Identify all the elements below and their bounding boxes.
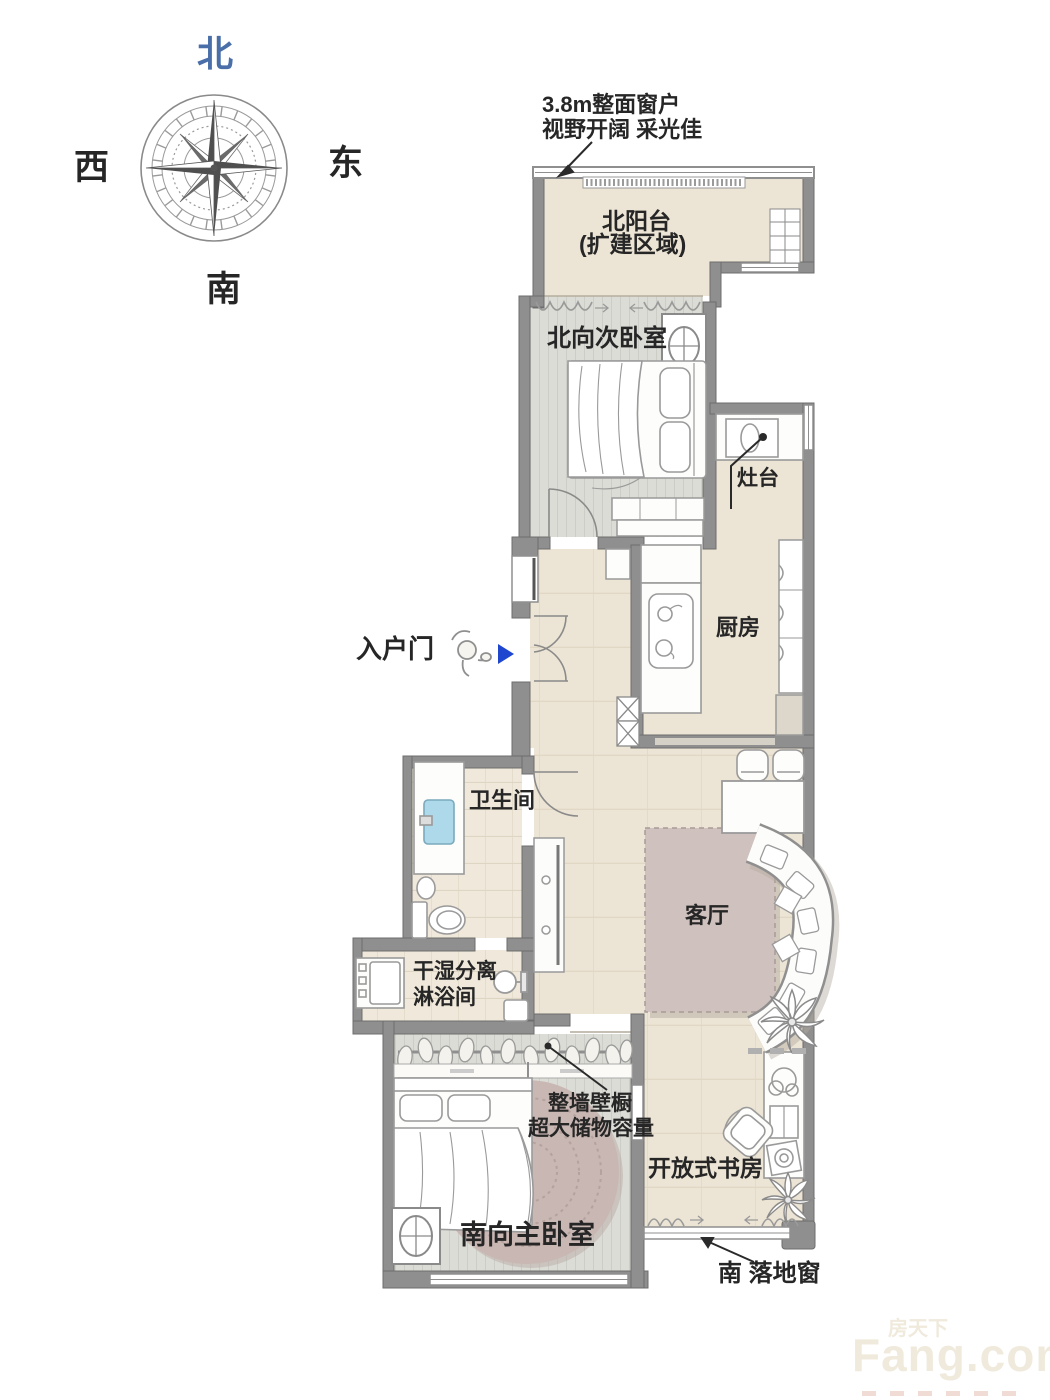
hall-shoe-cabinet: [606, 549, 630, 579]
balcony-step-window: [741, 263, 799, 272]
room-label-master-bedroom: 南向主卧室: [460, 1222, 595, 1249]
entry-person-icon: [452, 631, 491, 676]
compass-west-label: 西: [74, 150, 109, 185]
floor-plan-page: 北 西 东 南 3.8m整面窗户 视野开阔 采光佳 北阳台 (扩建区域) 北向次…: [0, 0, 1050, 1400]
south-master-window: [430, 1274, 628, 1285]
washing-machine: [356, 958, 404, 1008]
south-study-window: [644, 1227, 790, 1239]
callout-south-window: 南 落地窗: [718, 1262, 821, 1286]
bathroom-drain: [417, 877, 435, 899]
watermark-specks: [862, 1391, 1016, 1396]
north-bedroom-bed: [568, 361, 706, 489]
watermark-brand: Fang.com: [852, 1328, 1050, 1382]
study-desk: [764, 1052, 804, 1178]
room-label-bathroom: 卫生间: [469, 790, 535, 812]
compass-south-label: 南: [206, 272, 241, 307]
balcony-radiator: [583, 177, 745, 188]
shower-drain: [504, 1000, 528, 1021]
north-bedroom-dresser: [612, 498, 704, 536]
compass-east-label: 东: [328, 146, 363, 181]
top-window-note-line1: 3.8m整面窗户: [542, 94, 680, 116]
top-window-note-line2: 视野开阔 采光佳: [542, 119, 702, 141]
room-label-living: 客厅: [685, 905, 729, 927]
shower-head: [494, 971, 527, 993]
callout-entry-door: 入户门: [356, 636, 434, 662]
tv-cabinet: [534, 838, 564, 972]
room-label-north-balcony: 北阳台: [602, 210, 671, 233]
callout-closet-1: 整墙壁橱: [548, 1093, 632, 1114]
compass-rose: [141, 95, 287, 241]
room-label-shower-1: 干湿分离: [413, 961, 497, 982]
balcony-shelf: [770, 209, 800, 263]
room-label-shower-2: 淋浴间: [413, 987, 476, 1008]
sofa-side-dashes: [748, 1048, 806, 1054]
entry-direction-arrow: [498, 644, 514, 664]
room-label-north-balcony-2: (扩建区域): [579, 233, 686, 256]
kitchen-slide-door: [655, 738, 775, 745]
entry-shaft: [512, 556, 538, 602]
duct-shaft: [617, 697, 639, 746]
balcony-top-window: [533, 167, 814, 178]
floor-plan-drawing: [0, 0, 1050, 1400]
kitchen-tall-cabinet: [776, 540, 803, 735]
callout-stove: 灶台: [737, 468, 779, 489]
room-label-north-bedroom: 北向次卧室: [547, 327, 667, 351]
south-window-leader: [702, 1238, 754, 1262]
callout-closet-2: 超大储物容量: [528, 1118, 654, 1139]
kitchen-sink-counter: [641, 545, 701, 713]
room-label-study: 开放式书房: [648, 1157, 763, 1180]
room-label-kitchen: 厨房: [716, 617, 760, 639]
kitchen-side-window: [804, 405, 813, 450]
bathroom-vanity: [414, 762, 464, 874]
compass-north-label: 北: [197, 36, 233, 72]
master-ac-unit: [392, 1208, 440, 1264]
